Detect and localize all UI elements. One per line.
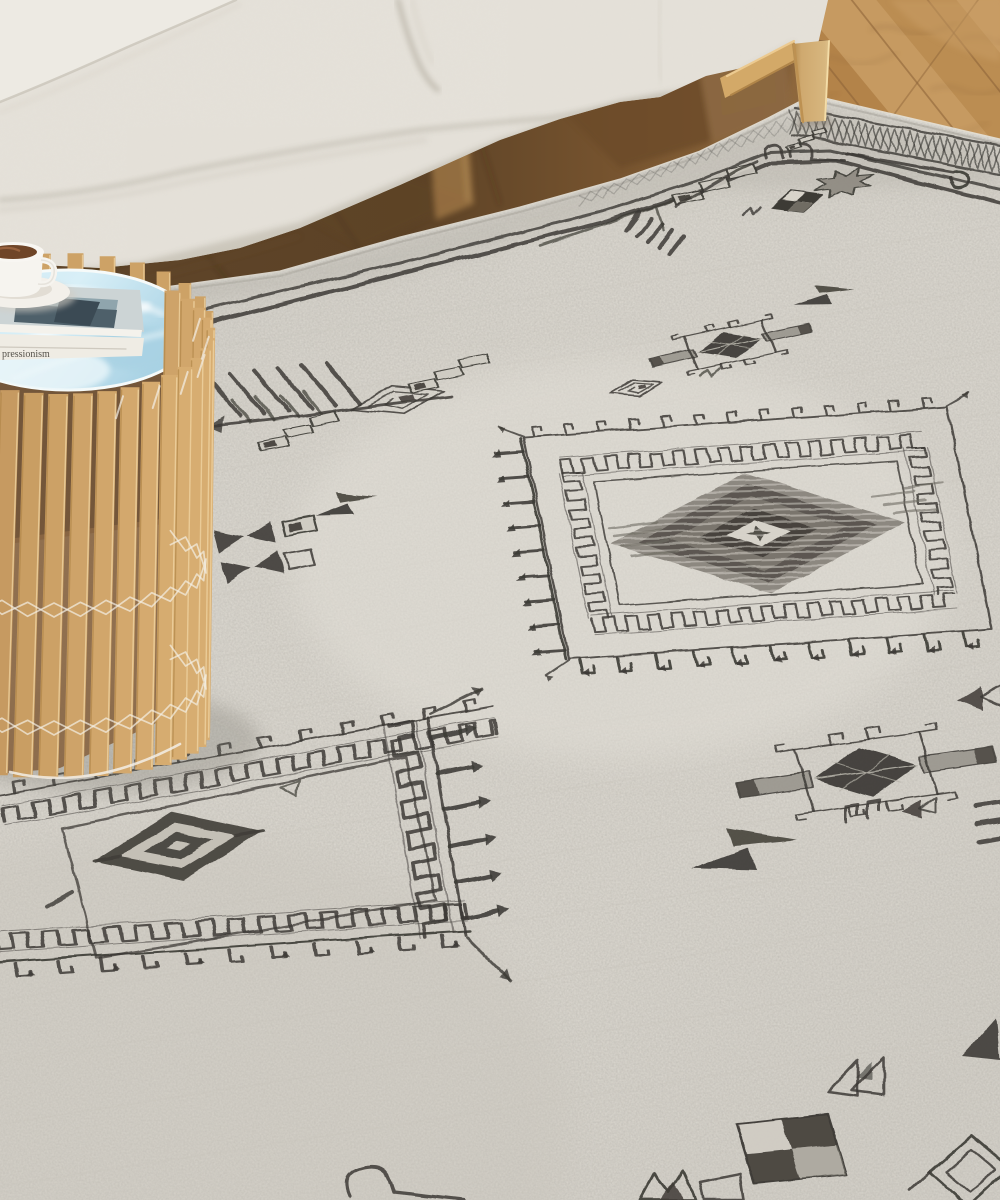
svg-text:pressionism: pressionism — [2, 349, 50, 360]
